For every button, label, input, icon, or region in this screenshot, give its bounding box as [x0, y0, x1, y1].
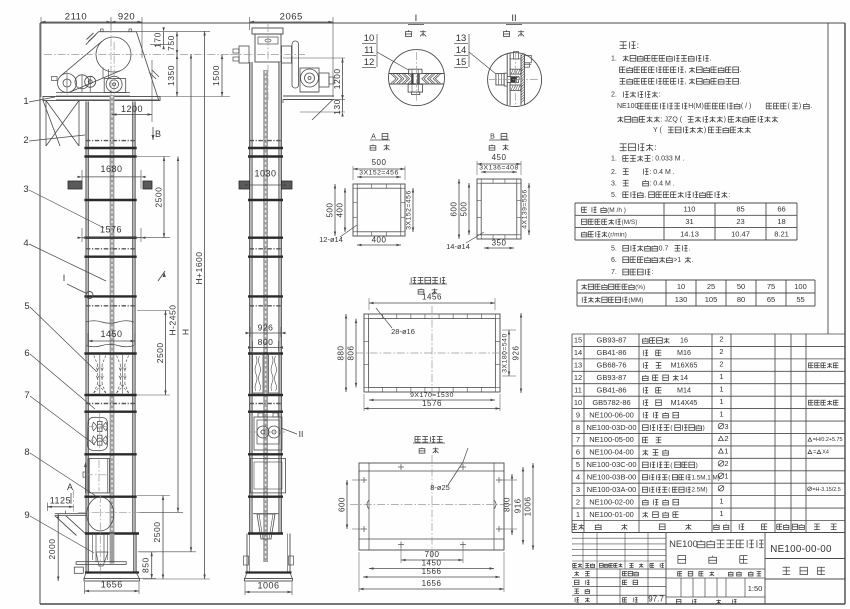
svg-text:11: 11 — [364, 45, 374, 56]
svg-text:(MM): (MM) — [628, 297, 643, 304]
svg-text:1030: 1030 — [254, 169, 276, 179]
svg-text:8: 8 — [576, 423, 580, 432]
svg-text:2500: 2500 — [154, 187, 164, 208]
svg-text:400: 400 — [336, 203, 345, 218]
svg-text:1456: 1456 — [422, 293, 442, 302]
svg-text:13: 13 — [456, 33, 467, 44]
svg-text:2: 2 — [719, 335, 723, 344]
svg-text:2.5M): 2.5M) — [692, 487, 708, 494]
svg-text:10: 10 — [677, 282, 685, 291]
svg-text:2.: 2. — [611, 169, 617, 176]
svg-text:NE100-03B-00: NE100-03B-00 — [587, 472, 637, 481]
svg-text:.: . — [740, 67, 742, 74]
svg-text:H: H — [181, 329, 191, 335]
svg-text:600: 600 — [338, 497, 347, 512]
svg-text:I: I — [415, 13, 418, 24]
svg-text:.: . — [740, 79, 742, 86]
svg-text:,: , — [685, 79, 687, 86]
svg-text:4: 4 — [576, 472, 580, 481]
svg-text:13: 13 — [574, 361, 582, 370]
svg-text:GB68-76: GB68-76 — [596, 361, 626, 370]
svg-text:1576: 1576 — [422, 399, 442, 408]
svg-text:1680: 1680 — [100, 164, 122, 174]
svg-text:NE100-01-00: NE100-01-00 — [589, 510, 634, 519]
svg-text:14-ø14: 14-ø14 — [446, 242, 470, 251]
svg-text:1.5M,1 M): 1.5M,1 M) — [692, 474, 720, 481]
svg-text:85: 85 — [736, 205, 744, 214]
svg-text:: JZQ (: : JZQ ( — [661, 117, 683, 124]
svg-text:55: 55 — [796, 295, 804, 304]
svg-text:1: 1 — [724, 447, 728, 456]
svg-text:.: . — [710, 56, 712, 63]
svg-text:12: 12 — [574, 373, 582, 382]
svg-text:NE100-03D-00: NE100-03D-00 — [586, 423, 636, 432]
svg-text:0.7: 0.7 — [659, 245, 669, 252]
svg-text:H-2450: H-2450 — [168, 305, 178, 336]
svg-text:600: 600 — [450, 202, 459, 217]
svg-text:926: 926 — [258, 323, 274, 333]
svg-text:9: 9 — [24, 510, 29, 521]
svg-text:2: 2 — [719, 347, 723, 356]
svg-text:): ) — [799, 103, 801, 110]
svg-text:130: 130 — [332, 99, 342, 115]
svg-text:1200: 1200 — [121, 104, 143, 114]
svg-text:II: II — [511, 13, 516, 24]
svg-text:2.: 2. — [611, 92, 617, 99]
svg-text:(M /h ): (M /h ) — [607, 207, 626, 214]
svg-text:12-ø14: 12-ø14 — [319, 235, 343, 244]
svg-text:50: 50 — [737, 282, 745, 291]
svg-text:(%): (%) — [635, 284, 645, 291]
svg-text:6.: 6. — [611, 257, 617, 264]
svg-text:GB41-86: GB41-86 — [596, 348, 626, 357]
svg-text:2065: 2065 — [280, 12, 303, 23]
svg-text:5.: 5. — [611, 245, 617, 252]
svg-text:: 0.4 M .: : 0.4 M . — [649, 180, 674, 187]
svg-text:8-ø25: 8-ø25 — [430, 483, 450, 492]
svg-text:: 0.4 M .: : 0.4 M . — [649, 169, 674, 176]
svg-text:806: 806 — [347, 346, 356, 361]
svg-text:14: 14 — [680, 373, 688, 382]
svg-text:): ) — [704, 127, 706, 134]
svg-text:80: 80 — [737, 295, 745, 304]
svg-text:1: 1 — [576, 510, 580, 519]
svg-text:NE100-03A-00: NE100-03A-00 — [587, 485, 637, 494]
svg-text:12: 12 — [364, 57, 375, 68]
svg-text:M16X65: M16X65 — [671, 361, 698, 370]
svg-text:A: A — [67, 482, 73, 492]
svg-text:15: 15 — [456, 57, 467, 68]
svg-text:1656: 1656 — [422, 579, 442, 588]
svg-text:1500: 1500 — [211, 65, 221, 86]
svg-text:7: 7 — [24, 390, 29, 401]
svg-text:916: 916 — [513, 498, 522, 513]
svg-text:1656: 1656 — [101, 580, 123, 590]
svg-text:920: 920 — [118, 12, 135, 23]
svg-text:A: A — [371, 134, 376, 141]
svg-text:800: 800 — [503, 497, 512, 512]
svg-text:3X152=456: 3X152=456 — [406, 190, 413, 229]
svg-text:): ) — [695, 462, 697, 469]
svg-text:1006: 1006 — [257, 581, 279, 591]
svg-text:2110: 2110 — [65, 12, 87, 23]
svg-text:450: 450 — [492, 153, 507, 162]
svg-text:2500: 2500 — [155, 342, 165, 363]
svg-text:I: I — [63, 273, 66, 283]
svg-text:5: 5 — [24, 301, 29, 312]
svg-text:B: B — [155, 129, 161, 139]
svg-text:(M/S): (M/S) — [622, 219, 638, 226]
svg-text:2000: 2000 — [47, 539, 57, 560]
svg-text:1350: 1350 — [166, 65, 176, 86]
svg-text:4X139=556: 4X139=556 — [522, 189, 529, 228]
svg-text:1576: 1576 — [100, 225, 122, 235]
svg-text:100: 100 — [794, 282, 807, 291]
svg-text:1006: 1006 — [524, 497, 533, 517]
svg-text:NE100: NE100 — [669, 538, 698, 549]
svg-text::: : — [651, 269, 653, 276]
svg-text:14: 14 — [574, 348, 582, 357]
svg-text:926: 926 — [512, 346, 521, 361]
svg-text:14: 14 — [456, 45, 467, 56]
svg-text:=H-3.15/2.5: =H-3.15/2.5 — [812, 487, 840, 493]
svg-text:.: . — [689, 245, 691, 252]
svg-text:6: 6 — [576, 448, 580, 457]
svg-text:97.7: 97.7 — [648, 595, 664, 604]
svg-text:): ) — [703, 425, 705, 432]
svg-text:8: 8 — [24, 447, 29, 458]
svg-text::: : — [728, 192, 730, 199]
svg-text:500: 500 — [460, 202, 469, 217]
svg-text:5.: 5. — [611, 192, 617, 199]
svg-text:7.: 7. — [611, 269, 617, 276]
svg-text:1: 1 — [719, 496, 723, 505]
svg-text:NE100-04-00: NE100-04-00 — [589, 448, 634, 457]
svg-text:3X152=456: 3X152=456 — [359, 170, 398, 177]
svg-text:2: 2 — [724, 434, 728, 443]
svg-text:=H/0.2+5.75: =H/0.2+5.75 — [813, 437, 843, 443]
svg-text:500: 500 — [326, 203, 335, 218]
svg-text:7: 7 — [576, 435, 580, 444]
svg-text:15: 15 — [574, 336, 582, 345]
svg-text:6: 6 — [24, 348, 29, 359]
svg-text:M14X45: M14X45 — [671, 398, 698, 407]
svg-text:1: 1 — [719, 372, 723, 381]
svg-text:NE100: NE100 — [617, 103, 639, 110]
svg-text:14.13: 14.13 — [680, 229, 699, 238]
svg-text::: : — [654, 142, 656, 152]
svg-text:1:50: 1:50 — [748, 584, 763, 593]
svg-text:(r/min): (r/min) — [608, 231, 627, 238]
svg-text:1: 1 — [719, 384, 723, 393]
svg-text:1.: 1. — [611, 56, 617, 63]
svg-text:880: 880 — [337, 346, 346, 361]
svg-text:10: 10 — [574, 398, 582, 407]
svg-text:1: 1 — [719, 397, 723, 406]
svg-text:2: 2 — [719, 360, 723, 369]
svg-text:1: 1 — [23, 96, 28, 107]
svg-text:3: 3 — [23, 184, 28, 195]
svg-text:GB93-87: GB93-87 — [596, 336, 626, 345]
svg-text:400: 400 — [372, 236, 387, 245]
svg-text:,: , — [644, 192, 646, 199]
svg-text:4: 4 — [23, 238, 28, 249]
svg-text:,: , — [685, 67, 687, 74]
svg-text:): ) — [724, 117, 726, 124]
svg-text:M14: M14 — [677, 385, 691, 394]
svg-text:3: 3 — [576, 485, 580, 494]
svg-text:850: 850 — [141, 557, 151, 573]
svg-text:NE100-05-00: NE100-05-00 — [589, 435, 634, 444]
svg-text:H(M): H(M) — [688, 103, 704, 110]
svg-text:800: 800 — [258, 337, 274, 347]
svg-text:NE100-03C-00: NE100-03C-00 — [586, 460, 636, 469]
svg-text:3X180=540: 3X180=540 — [502, 333, 509, 372]
svg-text:9: 9 — [576, 410, 580, 419]
svg-text:NE100-00-00: NE100-00-00 — [770, 544, 832, 555]
svg-text::: : — [659, 92, 661, 99]
svg-text:NE100-06-00: NE100-06-00 — [589, 410, 634, 419]
svg-text:1125: 1125 — [50, 496, 71, 506]
svg-text:: 0.033 M .: : 0.033 M . — [651, 156, 684, 163]
svg-text:.: . — [692, 257, 694, 264]
svg-text:130: 130 — [675, 295, 688, 304]
svg-text:5: 5 — [576, 460, 580, 469]
svg-text:2: 2 — [576, 497, 580, 506]
svg-text:2500: 2500 — [152, 522, 162, 543]
svg-text:3X136=408: 3X136=408 — [479, 165, 518, 172]
svg-text:( / ): ( / ) — [741, 103, 752, 110]
svg-text:1: 1 — [719, 509, 723, 518]
svg-text:28-ø16: 28-ø16 — [391, 327, 415, 336]
svg-text:=: = — [813, 450, 816, 456]
svg-text:10: 10 — [364, 33, 375, 44]
svg-text:M16: M16 — [677, 348, 691, 357]
svg-text:10.47: 10.47 — [731, 229, 750, 238]
svg-text::: : — [637, 40, 639, 50]
svg-text:X4: X4 — [822, 450, 829, 456]
svg-text:GB41-86: GB41-86 — [596, 385, 626, 394]
svg-text:1200: 1200 — [332, 68, 342, 89]
svg-text:2: 2 — [23, 135, 28, 146]
svg-text:25: 25 — [707, 282, 715, 291]
svg-text:16: 16 — [680, 336, 688, 345]
svg-text:>1: >1 — [673, 257, 681, 264]
svg-text:110: 110 — [684, 205, 696, 214]
svg-text:1566: 1566 — [422, 567, 442, 576]
svg-text:500: 500 — [372, 158, 387, 167]
svg-text:11: 11 — [574, 385, 582, 394]
svg-text:750: 750 — [166, 35, 176, 51]
svg-text:65: 65 — [767, 295, 775, 304]
svg-text:2: 2 — [724, 459, 728, 468]
svg-text:105: 105 — [705, 295, 718, 304]
svg-text:GB93-87: GB93-87 — [596, 373, 626, 382]
svg-text:170: 170 — [153, 32, 163, 48]
svg-text:GB5782-86: GB5782-86 — [592, 398, 630, 407]
svg-text:1.: 1. — [611, 156, 617, 163]
svg-text:.: . — [810, 103, 812, 110]
svg-text:NE100-02-00: NE100-02-00 — [589, 497, 634, 506]
svg-text:1: 1 — [719, 409, 723, 418]
svg-text:18: 18 — [777, 217, 785, 226]
svg-text:H+1600: H+1600 — [194, 251, 204, 284]
svg-text:3.: 3. — [611, 180, 617, 187]
svg-text:Y (: Y ( — [653, 127, 662, 134]
svg-text:350: 350 — [492, 239, 507, 248]
svg-text:8.21: 8.21 — [774, 229, 789, 238]
svg-text:23: 23 — [736, 217, 744, 226]
svg-text:3: 3 — [724, 422, 728, 431]
svg-text:75: 75 — [767, 282, 775, 291]
svg-text:31: 31 — [685, 217, 693, 226]
svg-text:B: B — [490, 134, 495, 141]
svg-text:1: 1 — [724, 471, 728, 480]
svg-text:1450: 1450 — [100, 329, 122, 339]
svg-text:II: II — [299, 429, 304, 439]
svg-text:66: 66 — [777, 205, 785, 214]
svg-text:9X170=1530: 9X170=1530 — [410, 392, 454, 399]
